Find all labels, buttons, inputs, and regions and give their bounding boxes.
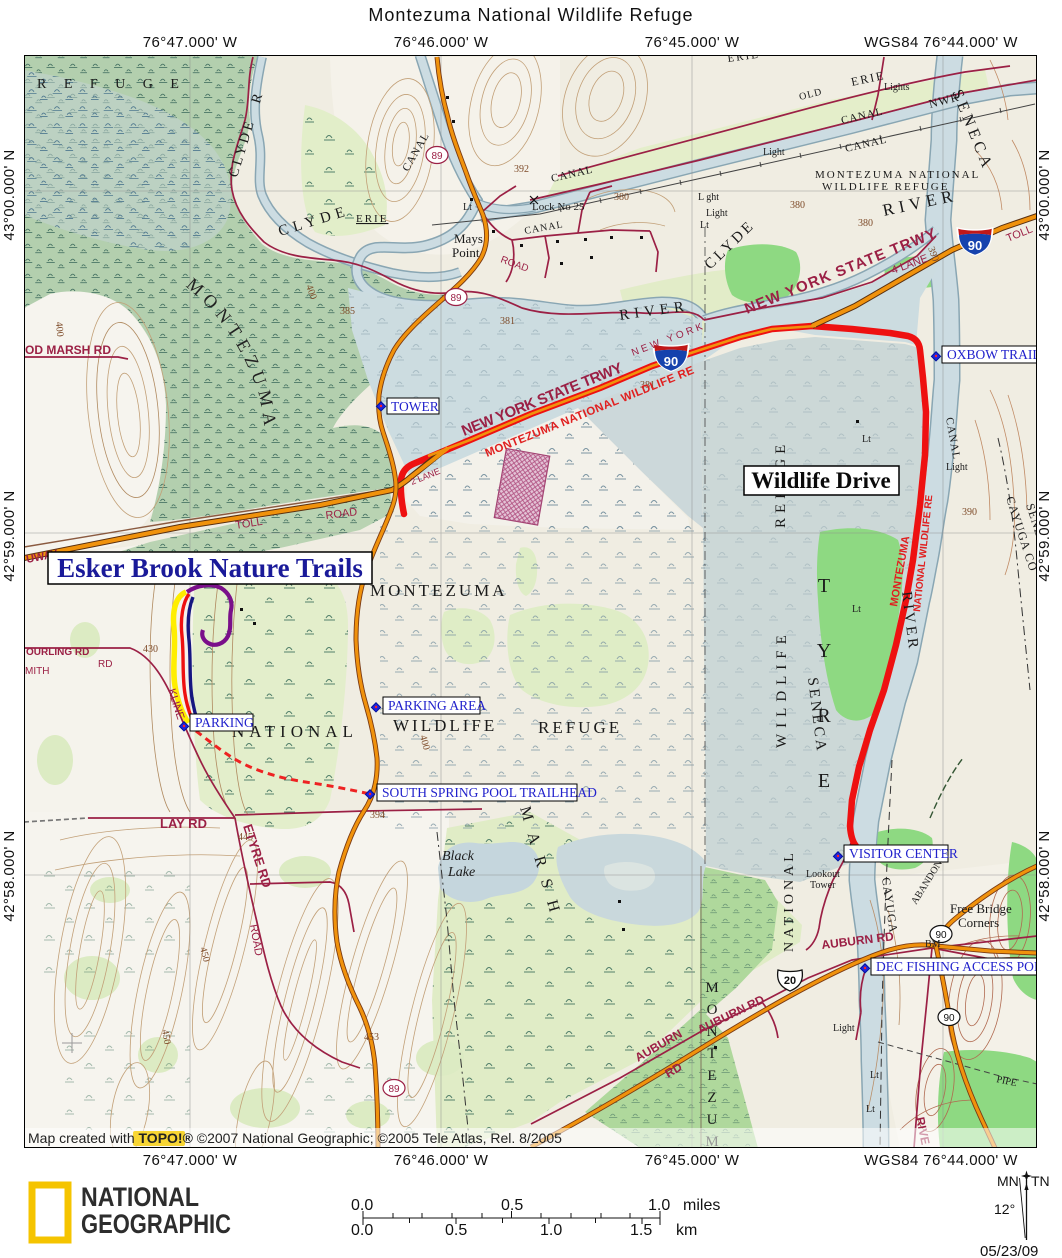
- svg-text:453: 453: [364, 1032, 379, 1043]
- svg-text:Z: Z: [707, 1090, 716, 1106]
- svg-text:89: 89: [431, 151, 443, 162]
- svg-text:42°58.000' N: 42°58.000' N: [1036, 830, 1053, 921]
- svg-text:T: T: [818, 575, 830, 597]
- svg-text:76°46.000' W: 76°46.000' W: [394, 34, 489, 51]
- svg-text:PARKING: PARKING: [195, 715, 254, 730]
- svg-text:76°47.000' W: 76°47.000' W: [143, 34, 238, 51]
- svg-text:12°: 12°: [994, 1201, 1015, 1217]
- svg-text:1.5: 1.5: [630, 1222, 652, 1239]
- svg-text:Light: Light: [833, 1023, 855, 1034]
- svg-text:WGS84 76°44.000' W: WGS84 76°44.000' W: [864, 1152, 1018, 1169]
- svg-text:TOWER: TOWER: [391, 399, 439, 414]
- svg-text:NATIONAL: NATIONAL: [782, 849, 797, 952]
- svg-text:89: 89: [388, 1084, 400, 1095]
- svg-text:Y: Y: [817, 640, 831, 662]
- svg-text:R: R: [817, 705, 831, 727]
- svg-text:Lt: Lt: [866, 1104, 875, 1115]
- svg-text:Light: Light: [763, 147, 785, 158]
- svg-text:05/23/09: 05/23/09: [980, 1243, 1038, 1258]
- svg-text:42°58.000' N: 42°58.000' N: [1, 830, 18, 921]
- svg-text:PARKING AREA: PARKING AREA: [388, 698, 486, 713]
- svg-text:76°45.000' W: 76°45.000' W: [645, 34, 740, 51]
- svg-text:42°59.000' N: 42°59.000' N: [1036, 490, 1053, 581]
- svg-text:381: 381: [500, 316, 515, 327]
- svg-text:Lookout: Lookout: [806, 869, 840, 880]
- svg-text:90: 90: [943, 1013, 955, 1024]
- svg-text:MONTEZUMA: MONTEZUMA: [370, 581, 508, 600]
- svg-text:Esker Brook Nature Trails: Esker Brook Nature Trails: [57, 553, 363, 583]
- svg-text:E: E: [818, 770, 830, 792]
- svg-text:MITH: MITH: [25, 666, 49, 677]
- svg-text:380: 380: [790, 200, 805, 211]
- svg-text:Lt: Lt: [463, 202, 472, 213]
- svg-text:OXBOW TRAIL: OXBOW TRAIL: [947, 347, 1041, 362]
- svg-text:385: 385: [340, 306, 355, 317]
- svg-text:WGS84 76°44.000' W: WGS84 76°44.000' W: [864, 34, 1018, 51]
- svg-text:M: M: [705, 980, 718, 996]
- svg-text:Lt: Lt: [870, 1070, 879, 1081]
- svg-text:Black: Black: [442, 849, 475, 864]
- svg-text:DEC FISHING ACCESS POINT: DEC FISHING ACCESS POINT: [876, 959, 1057, 974]
- svg-text:90: 90: [968, 238, 982, 253]
- svg-text:LAY RD: LAY RD: [160, 816, 207, 831]
- svg-text:Point: Point: [452, 245, 480, 260]
- svg-text:400: 400: [53, 321, 65, 337]
- svg-text:380: 380: [614, 192, 629, 203]
- svg-text:1.0: 1.0: [540, 1222, 562, 1239]
- svg-text:SOUTH SPRING POOL TRAILHEAD: SOUTH SPRING POOL TRAILHEAD: [382, 785, 597, 800]
- svg-text:WILDLIFE: WILDLIFE: [393, 716, 497, 735]
- svg-text:WILDLIFE REFUGE: WILDLIFE REFUGE: [822, 181, 949, 193]
- svg-text:89: 89: [450, 293, 462, 304]
- svg-text:RD: RD: [98, 659, 112, 670]
- svg-text:Lt: Lt: [700, 220, 709, 231]
- svg-text:OD MARSH RD: OD MARSH RD: [25, 343, 111, 357]
- svg-text:Lock No 25: Lock No 25: [532, 201, 585, 213]
- svg-text:miles: miles: [683, 1197, 720, 1214]
- svg-text:MN: MN: [997, 1173, 1019, 1189]
- svg-text:0.0: 0.0: [351, 1197, 373, 1214]
- svg-text:Tower: Tower: [810, 880, 836, 891]
- svg-text:R E F U G E: R E F U G E: [37, 77, 186, 92]
- svg-text:1.0: 1.0: [648, 1197, 670, 1214]
- svg-text:43°00.000' N: 43°00.000' N: [1, 149, 18, 240]
- svg-text:20: 20: [784, 975, 796, 987]
- svg-text:NATIONAL: NATIONAL: [81, 1182, 199, 1212]
- svg-text:Corners: Corners: [958, 915, 999, 930]
- svg-text:Lt: Lt: [852, 604, 861, 615]
- svg-text:76°46.000' W: 76°46.000' W: [394, 1152, 489, 1169]
- svg-text:Map created with TOPO!® ©2007: Map created with TOPO!® ©2007 National G…: [28, 1130, 562, 1146]
- svg-text:0.0: 0.0: [351, 1222, 373, 1239]
- svg-text:390: 390: [962, 507, 977, 518]
- svg-text:REFUGE: REFUGE: [538, 718, 622, 737]
- svg-text:0.5: 0.5: [501, 1197, 523, 1214]
- svg-text:km: km: [676, 1222, 697, 1239]
- svg-text:43°00.000' N: 43°00.000' N: [1036, 149, 1053, 240]
- svg-text:90: 90: [664, 354, 678, 369]
- svg-text:VISITOR CENTER: VISITOR CENTER: [849, 846, 958, 861]
- svg-text:Light: Light: [946, 462, 968, 473]
- svg-text:TN: TN: [1031, 1173, 1050, 1189]
- svg-text:.: .: [856, 0, 859, 3]
- svg-text:OURLING RD: OURLING RD: [26, 647, 89, 658]
- svg-text:E: E: [707, 1068, 716, 1084]
- svg-text:Free Bridge: Free Bridge: [950, 901, 1012, 916]
- svg-text:L ght: L ght: [698, 192, 719, 203]
- svg-text:U: U: [707, 1112, 718, 1128]
- svg-text:Mays: Mays: [454, 231, 483, 246]
- svg-text:76°45.000' W: 76°45.000' W: [645, 1152, 740, 1169]
- svg-text:394: 394: [370, 810, 385, 821]
- svg-text:0.5: 0.5: [445, 1222, 467, 1239]
- svg-text:380: 380: [858, 218, 873, 229]
- svg-text:GEOGRAPHIC: GEOGRAPHIC: [81, 1209, 231, 1239]
- svg-text:Lt: Lt: [862, 434, 871, 445]
- svg-text:430: 430: [143, 644, 158, 655]
- svg-text:392: 392: [514, 164, 529, 175]
- svg-text:Lake: Lake: [447, 865, 475, 880]
- svg-text:MONTEZUMA NATIONAL: MONTEZUMA NATIONAL: [815, 169, 980, 181]
- svg-text:Wildlife Drive: Wildlife Drive: [751, 468, 890, 493]
- svg-text:Lights: Lights: [884, 82, 910, 93]
- svg-text:76°47.000' W: 76°47.000' W: [143, 1152, 238, 1169]
- svg-text:Light: Light: [706, 208, 728, 219]
- svg-text:Montezuma National Wildlife Re: Montezuma National Wildlife Refuge: [368, 5, 693, 25]
- svg-text:42°59.000' N: 42°59.000' N: [1, 490, 18, 581]
- svg-text:WILDLIFE: WILDLIFE: [774, 629, 790, 748]
- svg-text:ERIE: ERIE: [356, 213, 388, 225]
- svg-text:BM: BM: [925, 939, 941, 950]
